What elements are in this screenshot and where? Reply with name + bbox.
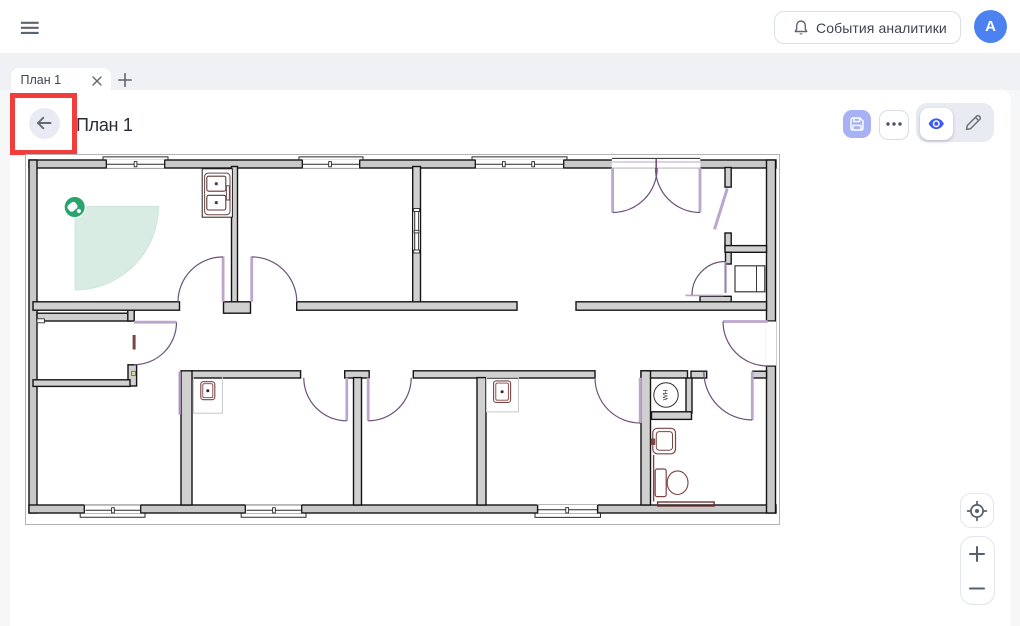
- svg-text:WH: WH: [663, 389, 670, 400]
